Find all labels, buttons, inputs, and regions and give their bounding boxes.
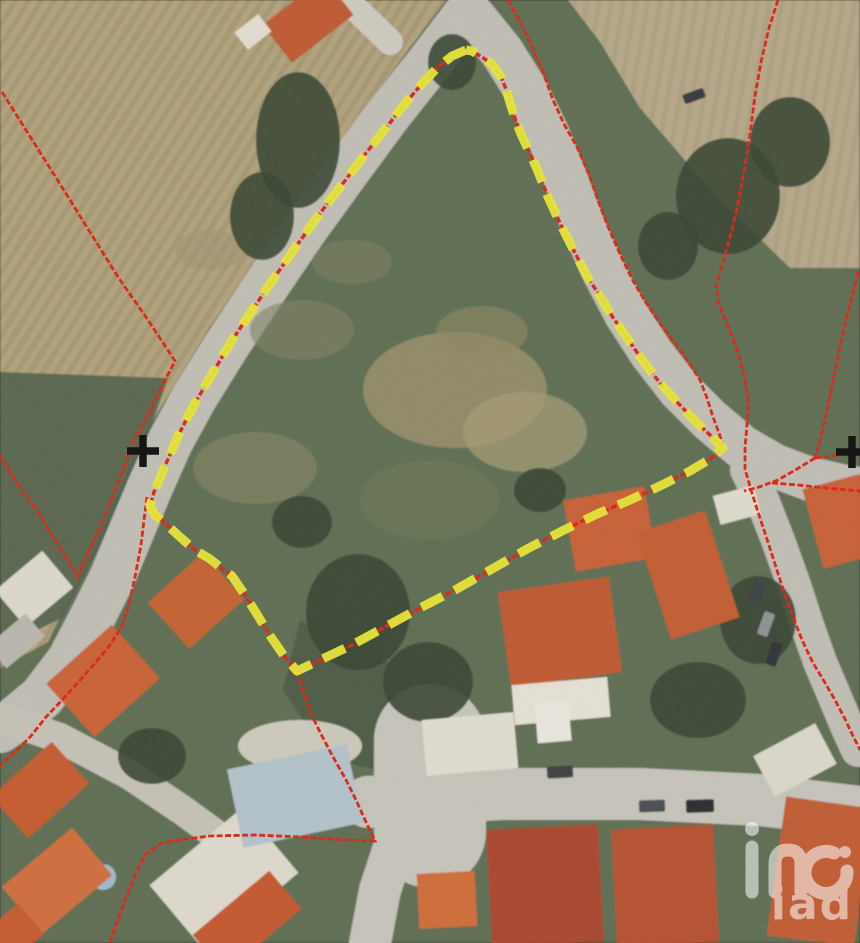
watermark-text: iad [771, 879, 853, 930]
iad-monogram-dot [745, 822, 759, 836]
satellite-image: iad [0, 0, 860, 943]
iad-monogram-dot-2 [839, 846, 851, 858]
photo-grain [0, 0, 860, 943]
aerial-photo-view: iad [0, 0, 860, 943]
terrain-layer [0, 0, 860, 943]
